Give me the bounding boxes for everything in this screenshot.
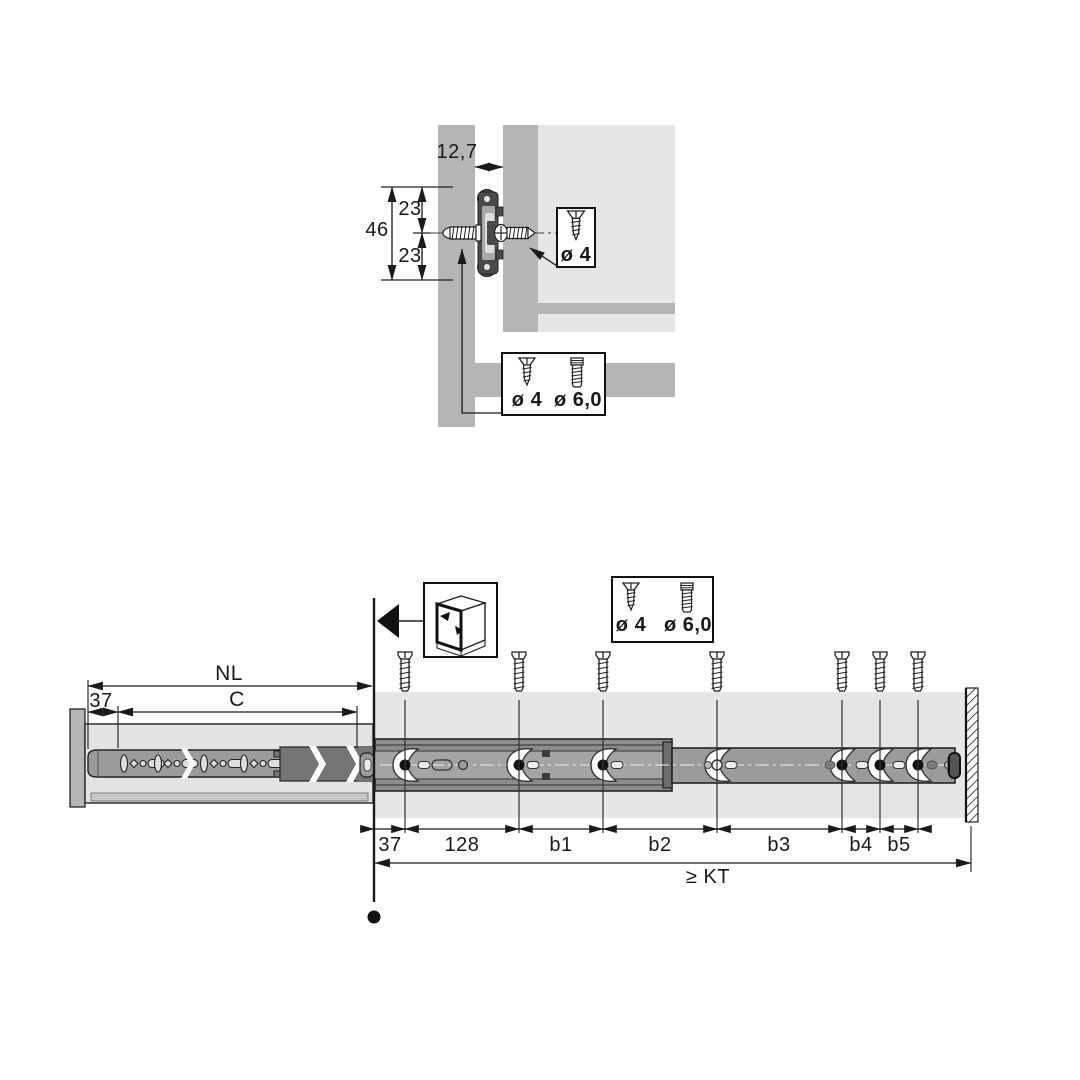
segment-label-128: 128 (445, 835, 480, 855)
cabinet-rear-wall (966, 688, 978, 822)
dim-label-kt: ≥ KT (686, 867, 730, 887)
segment-label-b1: b1 (549, 835, 572, 855)
drawing-canvas (0, 0, 1080, 1080)
dim-label-c: C (229, 690, 245, 710)
reference-dot (368, 911, 381, 924)
dim-label-37-front: 37 (89, 691, 112, 711)
front-direction-arrow (377, 604, 399, 638)
dim-label-12-7: 12,7 (437, 142, 478, 162)
drawer-front-panel (70, 709, 85, 807)
screw-box-bottom-label-right: ø 6,0 (664, 615, 712, 635)
dim-label-23-lower: 23 (398, 246, 421, 266)
side-view (70, 577, 978, 924)
screw-box-top-label-left: ø 4 (512, 390, 542, 410)
cross-section-view (381, 125, 675, 427)
dim-label-23-upper: 23 (398, 199, 421, 219)
drawer-bottom-panel (528, 303, 675, 314)
dim-label-46: 46 (365, 220, 388, 240)
euro-screw-icon (681, 583, 693, 612)
segment-label-b4: b4 (849, 835, 872, 855)
screw-box-bottom-label-left: ø 4 (616, 615, 646, 635)
screw-box-top-label-right: ø 6,0 (554, 390, 602, 410)
drawer-bottom-edge (91, 793, 368, 801)
technical-drawing-page: 12,7 23 23 46 ø 4 ø 4 ø 6,0 NL 37 C ø 4 … (0, 0, 1080, 1080)
cabinet-side-panel (438, 125, 475, 427)
rail-end-slot (949, 753, 960, 778)
dim-label-nl: NL (215, 664, 243, 684)
segment-label-b2: b2 (648, 835, 671, 855)
screw-into-cabinet-side (443, 225, 481, 241)
screw-callout-label: ø 4 (561, 245, 591, 265)
segment-label-b3: b3 (767, 835, 790, 855)
euro-screw-icon (571, 358, 583, 387)
segment-label-b5: b5 (887, 835, 910, 855)
segment-label-37: 37 (378, 835, 401, 855)
